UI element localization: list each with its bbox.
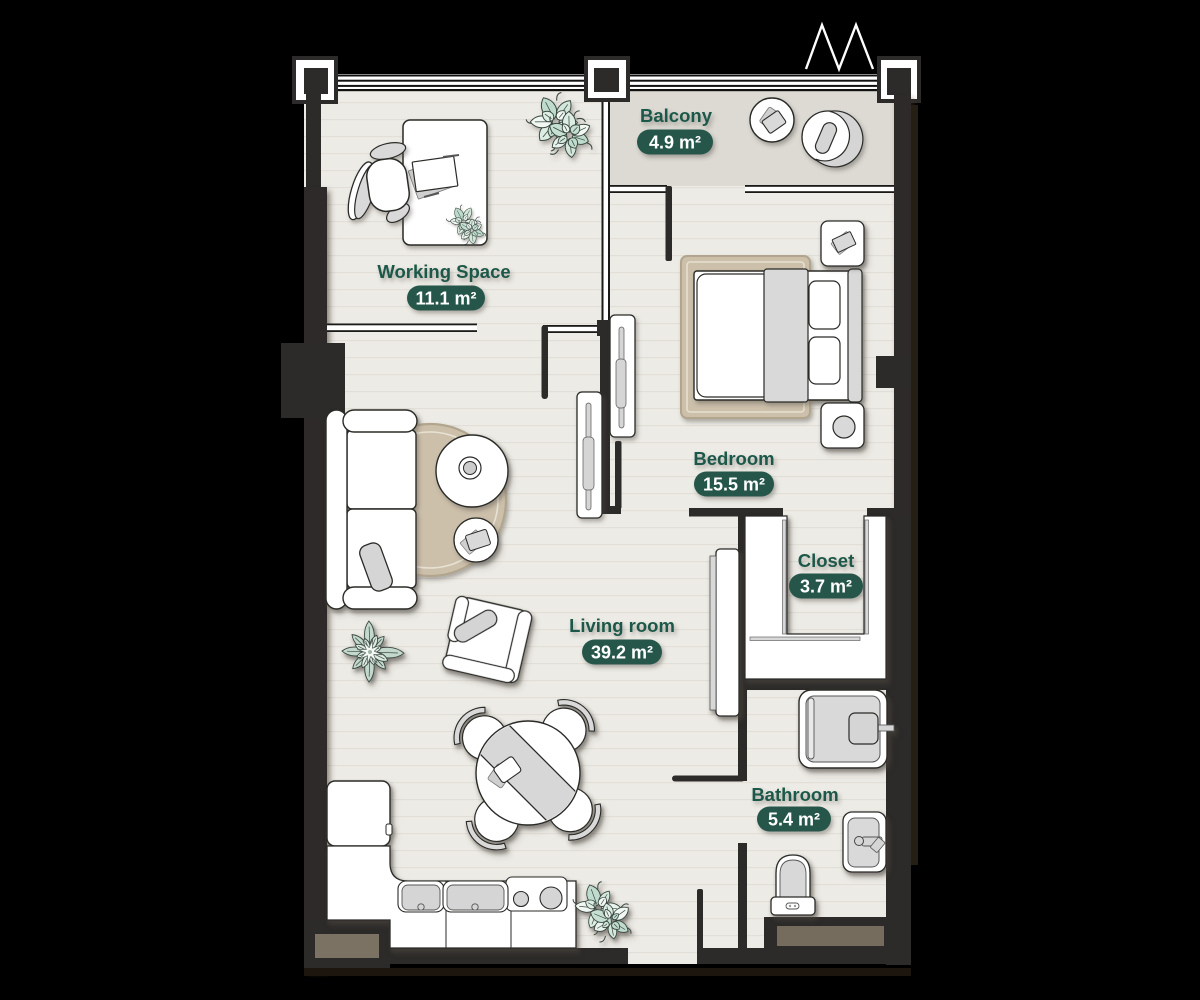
svg-text:11.1 m²: 11.1 m² [415,289,476,309]
svg-text:Bathroom: Bathroom [751,784,838,805]
svg-text:Working Space: Working Space [377,261,510,282]
svg-text:Balcony: Balcony [640,105,713,126]
svg-text:39.2 m²: 39.2 m² [591,643,653,663]
svg-text:Bedroom: Bedroom [693,448,774,469]
svg-text:5.4 m²: 5.4 m² [768,810,820,830]
svg-text:Living room: Living room [569,615,675,636]
svg-text:15.5 m²: 15.5 m² [703,475,765,495]
svg-text:4.9 m²: 4.9 m² [649,133,701,153]
svg-text:Closet: Closet [798,550,855,571]
svg-text:3.7 m²: 3.7 m² [800,577,852,597]
